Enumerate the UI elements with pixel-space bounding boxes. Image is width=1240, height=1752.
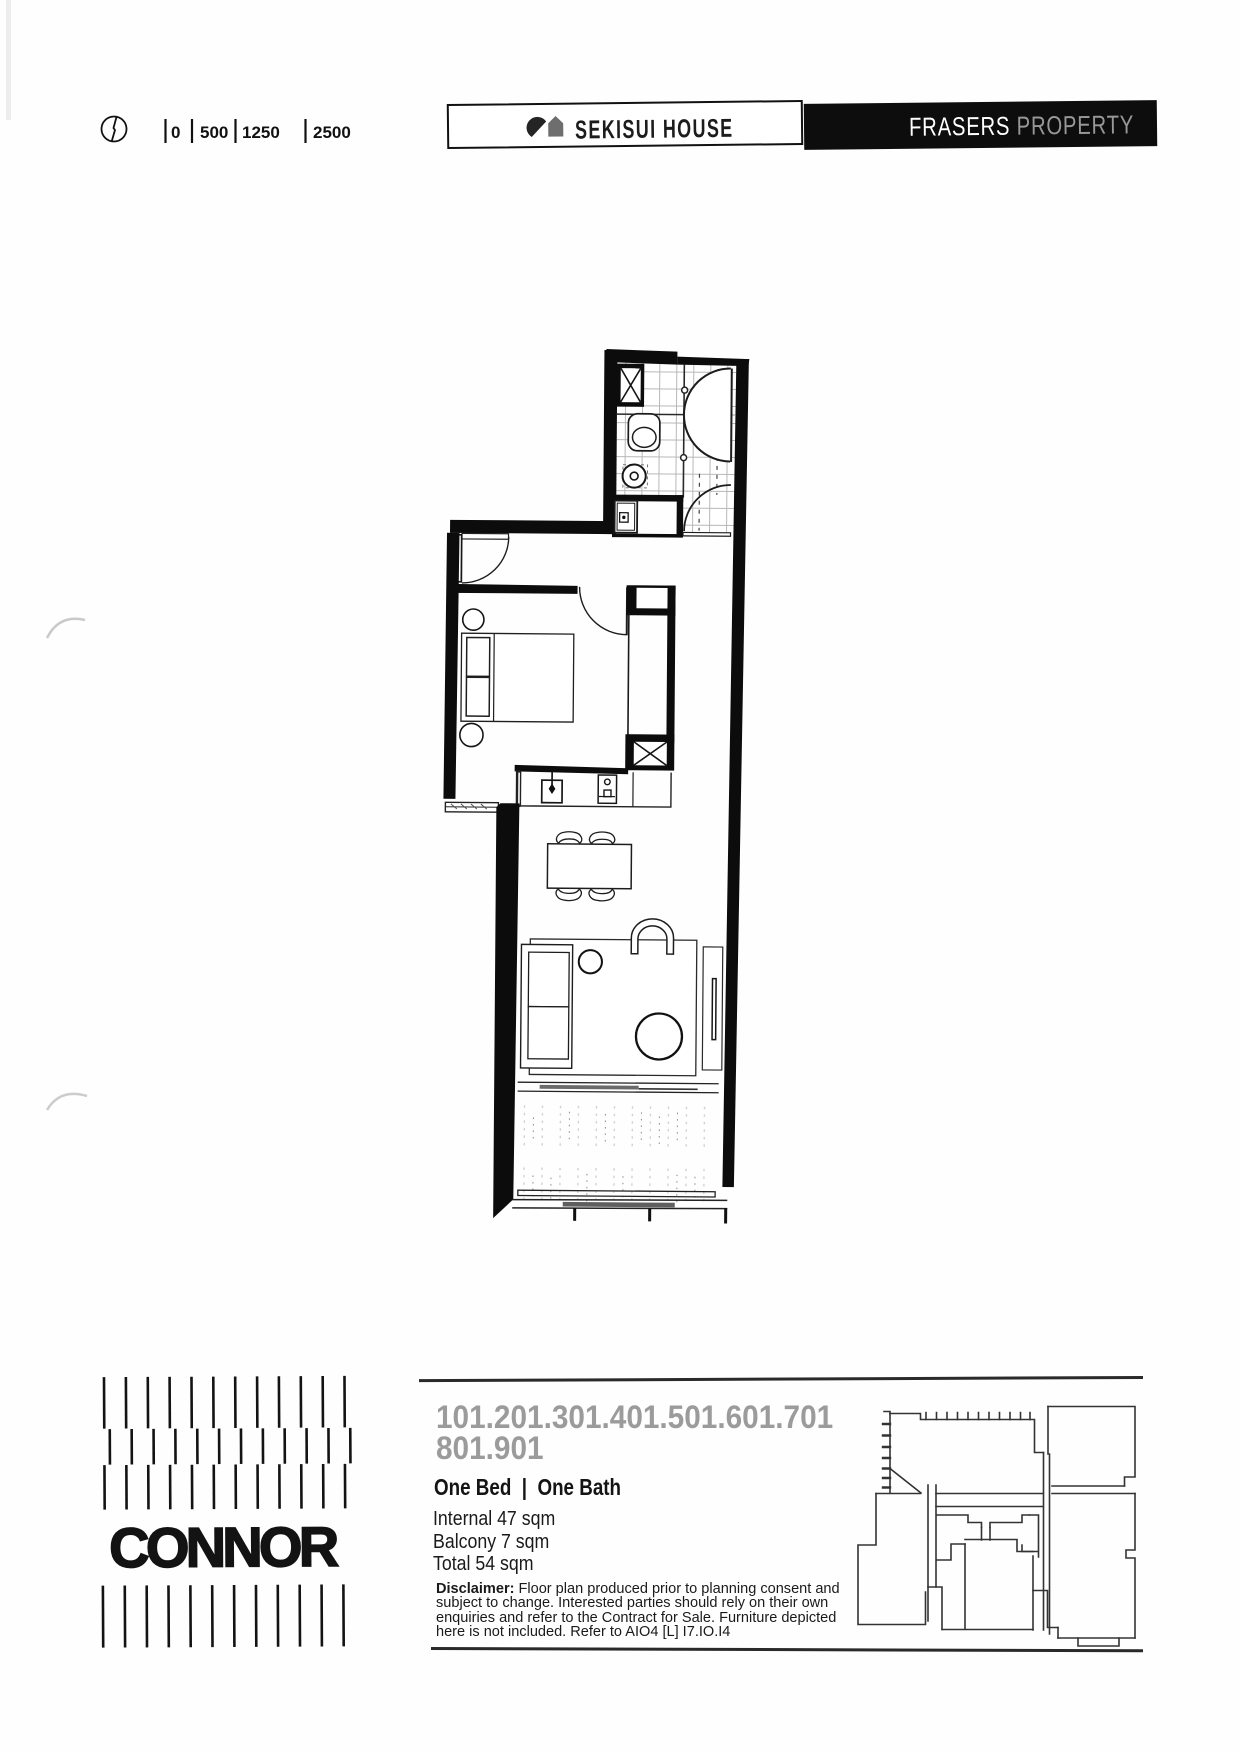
svg-text:1250: 1250 bbox=[242, 123, 280, 142]
svg-text:CONNOR: CONNOR bbox=[109, 1515, 339, 1579]
svg-text:500: 500 bbox=[200, 123, 228, 142]
svg-text:2500: 2500 bbox=[313, 123, 351, 142]
svg-text:0: 0 bbox=[171, 123, 180, 142]
